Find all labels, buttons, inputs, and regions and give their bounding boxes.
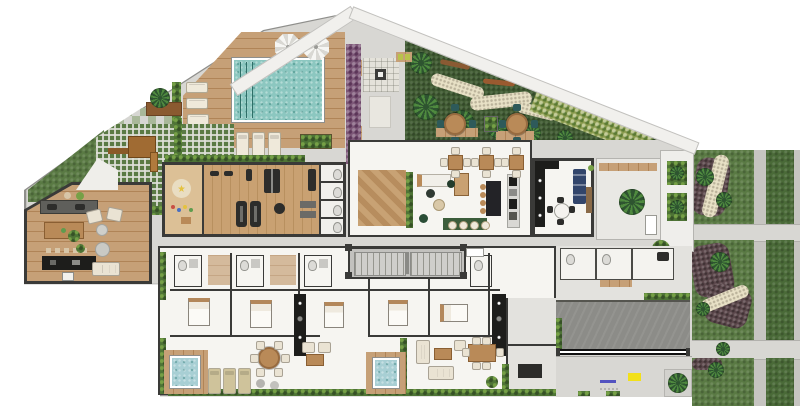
toy <box>171 205 175 209</box>
dining-table <box>509 155 524 170</box>
sun-lounger <box>223 368 236 394</box>
staircase <box>410 252 462 276</box>
party-room <box>532 158 594 237</box>
palm-tree-icon <box>708 362 724 378</box>
plunge-pool <box>373 358 399 388</box>
workstation-icon <box>47 204 57 210</box>
shower <box>319 259 328 268</box>
reception-desk <box>417 174 451 187</box>
crosswalk <box>692 340 800 360</box>
dining-chair <box>472 362 481 370</box>
stool <box>459 221 468 230</box>
dining-chair <box>557 219 564 225</box>
entry-bench <box>600 280 632 287</box>
dining-chair <box>482 337 491 345</box>
toilet-icon <box>178 260 187 271</box>
dining-table <box>479 155 494 170</box>
outdoor-table <box>444 113 466 135</box>
equipment-rack-icon <box>308 169 316 191</box>
cushion <box>405 54 410 60</box>
dining-chair <box>463 158 471 167</box>
gym-block <box>162 162 346 237</box>
stall-wall <box>321 199 343 201</box>
bench <box>396 52 412 62</box>
bed <box>188 298 210 326</box>
bathroom <box>304 255 332 287</box>
site-plan <box>0 0 800 406</box>
outdoor-chair <box>451 104 459 111</box>
dining-chair <box>256 341 265 350</box>
palm-tree-icon <box>413 94 439 120</box>
round-dining-table <box>554 203 570 219</box>
bed <box>324 302 344 328</box>
palm-tree-icon <box>670 166 684 180</box>
courtyard-tree <box>619 189 645 215</box>
bed <box>250 300 272 328</box>
wall <box>508 344 558 346</box>
sidewalk <box>556 356 692 397</box>
bar-stool <box>480 192 486 198</box>
service-room <box>560 248 596 280</box>
bar-item <box>50 260 56 265</box>
elevator-tag <box>466 248 484 257</box>
palm-tree-icon <box>716 342 730 356</box>
patio-table <box>95 242 110 257</box>
round-side-table <box>433 199 445 211</box>
service-room <box>596 248 632 280</box>
bathroom <box>174 255 202 287</box>
plant-icon <box>76 192 84 200</box>
workstation-icon <box>75 204 85 210</box>
palm-planter <box>664 369 692 397</box>
bathroom <box>236 255 264 287</box>
palm-tree-icon <box>668 373 688 393</box>
pouf <box>64 192 71 199</box>
dining-chair <box>496 348 504 357</box>
kids-playroom <box>165 165 202 234</box>
plant-icon <box>61 228 66 233</box>
dining-table <box>448 155 463 170</box>
lobby-lounge <box>348 140 532 237</box>
dining-chair <box>451 147 460 155</box>
outdoor-chair <box>437 120 444 128</box>
exercise-ball-icon <box>274 203 285 214</box>
toy <box>189 208 193 212</box>
wall <box>488 253 490 335</box>
sun-lounger <box>186 82 208 93</box>
herringbone-rug <box>358 170 406 226</box>
sun-lounger <box>208 368 221 394</box>
dining-chair <box>512 147 521 155</box>
wall <box>368 335 500 337</box>
planter-box <box>484 116 498 132</box>
dining-chair <box>569 206 575 213</box>
sink <box>62 272 74 281</box>
plant-icon <box>588 165 594 171</box>
palm-tree-icon <box>696 302 710 316</box>
garage-area <box>506 298 558 395</box>
outdoor-table <box>506 113 528 135</box>
shower <box>251 259 260 268</box>
bar-stool <box>480 200 486 206</box>
bed <box>388 300 408 326</box>
wall <box>230 253 232 335</box>
dining-chair <box>512 170 521 178</box>
toilet-icon <box>333 205 342 216</box>
closet <box>208 255 230 285</box>
kids-table <box>181 217 191 224</box>
dining-chair <box>472 337 481 345</box>
toy <box>183 205 187 209</box>
lockers <box>321 165 343 234</box>
bed <box>440 304 468 322</box>
treadmill-icon <box>236 201 247 227</box>
dining-chair <box>482 170 491 178</box>
hedge <box>502 364 509 392</box>
sideboard <box>586 187 592 213</box>
palm-tree-icon <box>716 192 732 208</box>
garden-bed <box>692 358 754 406</box>
dining-chair <box>440 158 448 167</box>
hedge <box>556 318 562 352</box>
kitchen-counter <box>507 174 520 228</box>
stool <box>470 221 479 230</box>
shower <box>189 259 198 268</box>
palm-tree-icon <box>696 168 714 186</box>
sun-lounger <box>186 98 208 109</box>
dining-chair <box>281 354 290 363</box>
service-room <box>632 248 674 280</box>
cable-machine-icon <box>264 169 280 193</box>
verge <box>766 358 794 406</box>
dining-chair <box>547 206 553 213</box>
driveway <box>556 300 690 352</box>
stool <box>481 221 490 230</box>
outdoor-chair <box>513 104 521 111</box>
coffee-table <box>434 348 452 360</box>
verge <box>766 150 794 224</box>
tactile-marking <box>628 373 641 381</box>
shrub-row <box>578 391 590 396</box>
patio-chair <box>106 207 123 223</box>
garden-bed <box>692 240 754 340</box>
dining-chair <box>482 362 491 370</box>
kitchen-counter <box>535 161 559 169</box>
dumbbell-rack-icon <box>224 171 233 176</box>
entry-court <box>556 246 692 300</box>
bar-counter <box>486 181 501 216</box>
garage-block <box>518 364 542 378</box>
sofa <box>416 340 430 364</box>
planter-box <box>300 134 332 149</box>
treadmill-icon <box>250 201 261 227</box>
hedge <box>644 293 690 300</box>
outdoor-chair <box>531 120 538 128</box>
shelf <box>300 211 316 218</box>
planter-box <box>667 161 687 185</box>
equipment <box>657 252 669 261</box>
stool <box>448 221 457 230</box>
toilet-icon <box>308 260 317 271</box>
stall-wall <box>321 217 343 219</box>
bush <box>68 230 80 242</box>
coffee-table <box>306 354 324 366</box>
dining-chair <box>451 170 460 178</box>
dining-chair <box>501 158 509 167</box>
dining-chair <box>557 197 564 203</box>
toilet-icon <box>240 260 249 271</box>
appliance <box>509 177 517 186</box>
bar-stool <box>480 208 486 214</box>
dining-chair <box>274 368 283 377</box>
planter-strip <box>406 172 413 228</box>
sofa <box>428 366 454 380</box>
tree-icon <box>486 376 498 388</box>
entrance-gate <box>558 349 688 355</box>
stall-wall <box>321 181 343 183</box>
toilet-icon <box>333 222 342 233</box>
dining-chair <box>250 354 259 363</box>
weight-bench-icon <box>246 169 252 181</box>
fire-pit-center <box>378 72 383 77</box>
door-mat <box>645 215 657 235</box>
desk-chair <box>447 180 455 188</box>
planter-box <box>667 193 687 221</box>
staircase <box>354 252 406 276</box>
closet <box>270 255 296 285</box>
dumbbell-rack-icon <box>210 171 219 176</box>
dining-chair <box>274 341 283 350</box>
tactile-marking <box>600 380 616 383</box>
paver-dots <box>600 388 620 390</box>
bar-item <box>72 260 80 265</box>
outdoor-sofa <box>92 262 120 276</box>
wall-post <box>460 272 467 279</box>
toilet-icon <box>566 254 575 265</box>
palm-tree-icon <box>670 200 684 214</box>
appliance <box>509 199 517 209</box>
street <box>692 150 800 406</box>
tree-icon <box>150 88 170 108</box>
stone-mat <box>369 96 391 128</box>
gym <box>204 165 319 234</box>
verge <box>766 240 794 340</box>
swing-beam <box>108 148 128 154</box>
cushion <box>398 54 403 60</box>
patio-table <box>96 224 108 236</box>
dining-chair <box>256 368 265 377</box>
dining-chair <box>471 158 479 167</box>
armchair <box>318 342 331 353</box>
bar-counter <box>42 256 96 270</box>
pouf <box>419 214 428 223</box>
shrub-row <box>606 391 620 396</box>
courtyard <box>596 158 662 240</box>
office-chair <box>426 189 435 198</box>
slide <box>150 152 158 172</box>
toilet-icon <box>602 254 611 265</box>
core-divider <box>405 252 409 274</box>
sun-lounger <box>238 368 251 394</box>
plunge-pool <box>170 356 200 388</box>
wall-post <box>345 272 352 279</box>
toilet-icon <box>333 169 342 180</box>
outdoor-chair <box>469 120 476 128</box>
outdoor-chair <box>499 120 506 128</box>
palm-tree-icon <box>410 52 432 74</box>
service-strip <box>660 150 694 252</box>
toilet-icon <box>474 260 483 271</box>
toilet-icon <box>333 187 342 198</box>
shelf <box>300 201 316 208</box>
toy <box>177 208 181 212</box>
blue-sofa <box>573 169 586 204</box>
dining-table <box>468 344 496 362</box>
garden-bed <box>692 150 754 224</box>
wall-post <box>345 244 352 251</box>
fire-pit-icon <box>375 69 386 80</box>
hedge <box>160 252 166 300</box>
dining-chair <box>462 348 470 357</box>
stair-core <box>348 247 466 279</box>
gate-post <box>556 348 560 356</box>
round-dining-table <box>258 347 280 369</box>
armchair <box>302 342 315 353</box>
appliance <box>509 189 517 196</box>
bush <box>76 244 85 253</box>
dining-chair <box>482 147 491 155</box>
sun-lounger <box>187 114 209 125</box>
wall <box>170 289 500 291</box>
kitchen-counter <box>535 169 545 227</box>
palm-tree-icon <box>710 252 730 272</box>
appliance <box>509 212 517 220</box>
pouf <box>256 379 265 388</box>
gate-post <box>686 348 690 356</box>
bar-stool <box>480 184 486 190</box>
wood-band <box>599 163 657 171</box>
